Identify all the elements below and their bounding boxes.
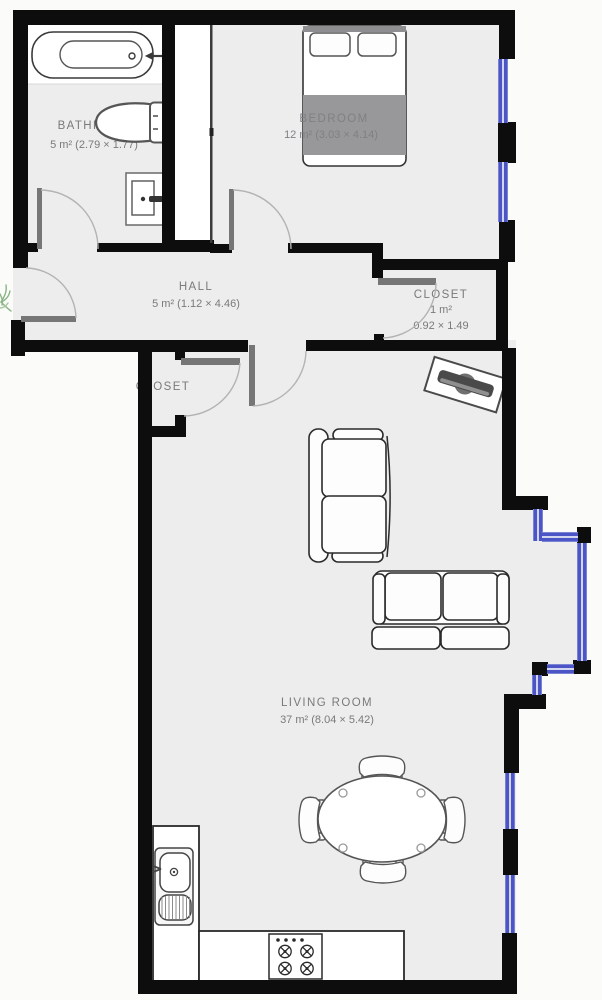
svg-text:5 m² (1.12 × 4.46): 5 m² (1.12 × 4.46) <box>152 298 240 310</box>
svg-text:CLOSET: CLOSET <box>414 289 468 301</box>
svg-text:0.92 × 1.49: 0.92 × 1.49 <box>413 320 468 332</box>
svg-text:HALL: HALL <box>179 281 213 293</box>
svg-text:37 m² (8.04 × 5.42): 37 m² (8.04 × 5.42) <box>280 714 374 726</box>
svg-text:12 m² (3.03 × 4.14): 12 m² (3.03 × 4.14) <box>284 129 378 141</box>
svg-text:1 m²: 1 m² <box>430 304 452 316</box>
svg-text:LIVING ROOM: LIVING ROOM <box>281 697 373 709</box>
svg-text:BEDROOM: BEDROOM <box>299 113 368 125</box>
